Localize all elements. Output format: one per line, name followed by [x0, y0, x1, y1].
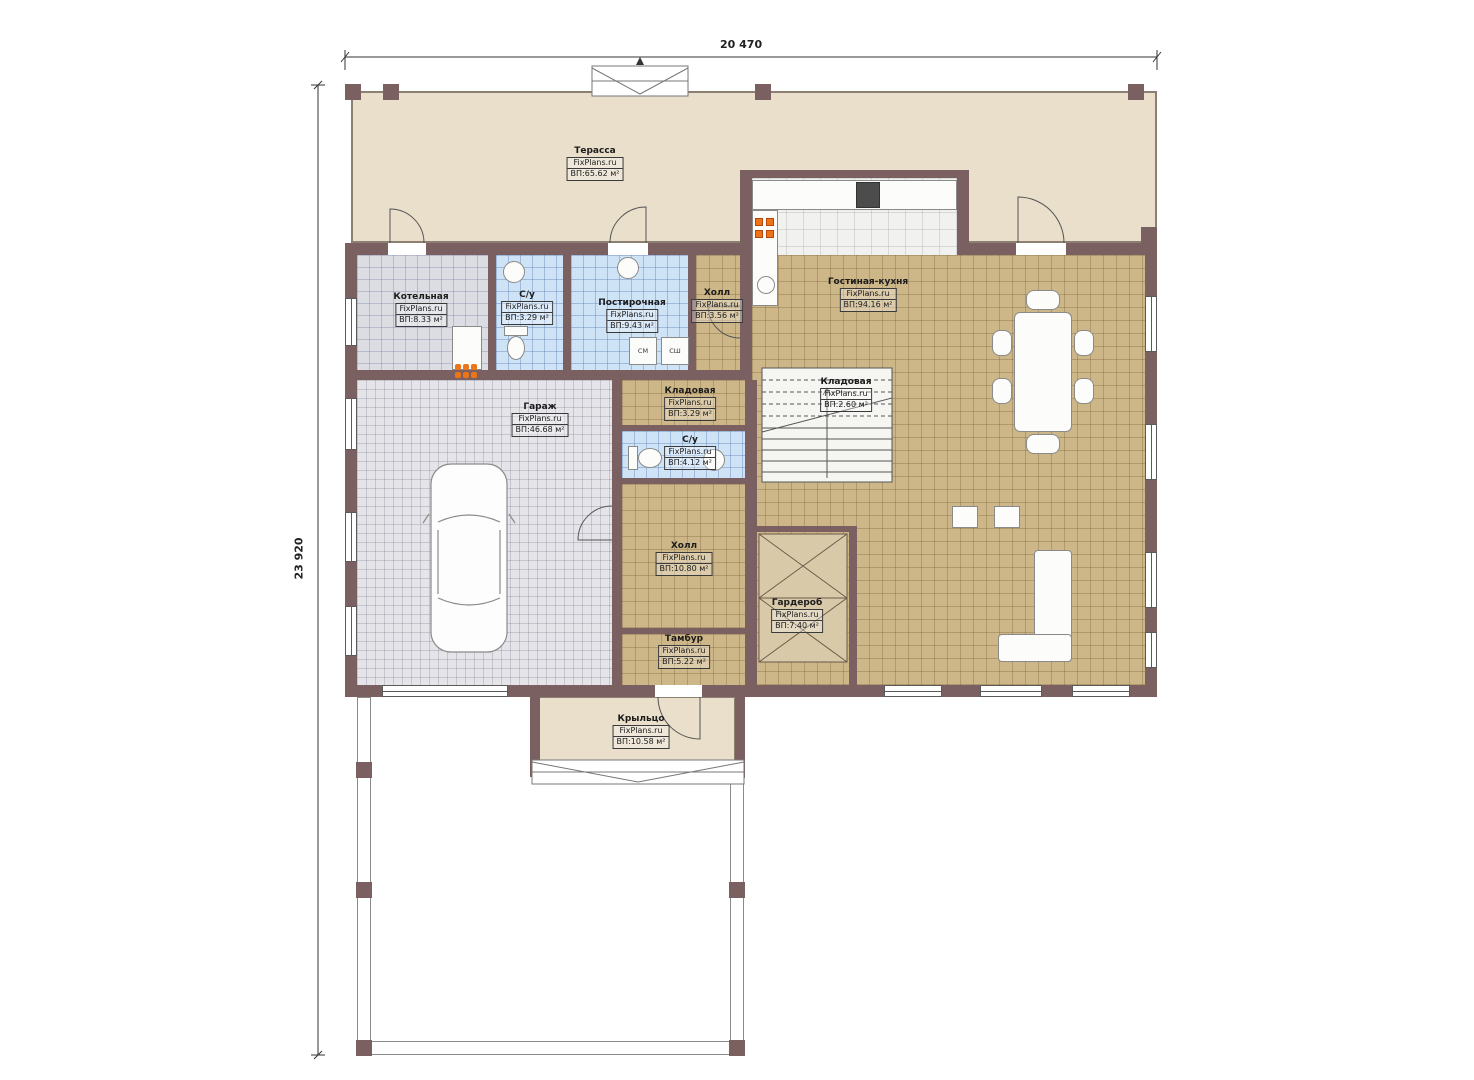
floor-plan: 20 470 23 920: [0, 0, 1474, 1080]
room-watermark: FixPlans.ru: [614, 726, 669, 737]
door-arc-boiler-terrace: [390, 209, 424, 243]
room-label-porch: Крыльцо FixPlans.ruВП:10.58 м²: [613, 714, 670, 749]
room-area: ВП:9.43 м²: [607, 321, 657, 331]
room-label-hall2: Холл FixPlans.ruВП:10.80 м²: [656, 541, 713, 576]
room-area: ВП:65.62 м²: [568, 169, 623, 179]
room-label-living-kitchen: Гостиная-кухня FixPlans.ruВП:94.16 м²: [828, 277, 908, 312]
room-watermark: FixPlans.ru: [607, 310, 657, 321]
room-area: ВП:3.56 м²: [692, 311, 742, 321]
room-label-pantry1: Кладовая FixPlans.ruВП:3.29 м²: [664, 386, 716, 421]
dimension-left-label: 23 920: [293, 537, 306, 579]
door-arc-garage: [578, 506, 612, 540]
room-name: Терасса: [574, 146, 616, 156]
dimension-top-label: 20 470: [720, 38, 762, 51]
car-icon: [423, 464, 515, 652]
canopy-top: [592, 57, 688, 96]
room-area: ВП:3.29 м²: [502, 313, 552, 323]
room-name: Котельная: [393, 292, 448, 302]
room-area: ВП:94.16 м²: [841, 300, 896, 310]
room-label-boiler: Котельная FixPlans.ruВП:8.33 м²: [393, 292, 448, 327]
room-name: Гараж: [523, 402, 556, 412]
room-label-garage: Гараж FixPlans.ruВП:46.68 м²: [512, 402, 569, 437]
room-watermark: FixPlans.ru: [665, 447, 715, 458]
room-area: ВП:10.58 м²: [614, 737, 669, 747]
room-name: Постирочная: [598, 298, 665, 308]
room-area: ВП:5.22 м²: [659, 657, 709, 667]
room-watermark: FixPlans.ru: [841, 289, 896, 300]
room-watermark: FixPlans.ru: [657, 553, 712, 564]
room-name: С/у: [519, 290, 535, 300]
canopy-porch: [532, 760, 744, 784]
room-watermark: FixPlans.ru: [665, 398, 715, 409]
room-area: ВП:8.33 м²: [396, 315, 446, 325]
canopy-arrow: [636, 57, 644, 65]
dimension-left-line: [311, 81, 325, 1059]
room-name: Холл: [671, 541, 697, 551]
room-label-terrace: Терасса FixPlans.ruВП:65.62 м²: [567, 146, 624, 181]
room-name: С/у: [682, 435, 698, 445]
room-area: ВП:3.29 м²: [665, 409, 715, 419]
room-area: ВП:7.40 м²: [772, 621, 822, 631]
room-label-laundry: Постирочная FixPlans.ruВП:9.43 м²: [598, 298, 665, 333]
room-watermark: FixPlans.ru: [659, 646, 709, 657]
room-area: ВП:46.68 м²: [513, 425, 568, 435]
room-watermark: FixPlans.ru: [396, 304, 446, 315]
room-watermark: FixPlans.ru: [568, 158, 623, 169]
room-name: Кладовая: [820, 377, 871, 387]
car-body: [431, 464, 507, 652]
dimension-top-line: [341, 50, 1161, 70]
room-label-pantry2: Кладовая FixPlans.ruВП:2.60 м²: [820, 377, 872, 412]
room-name: Тамбур: [665, 634, 703, 644]
room-label-hall1: Холл FixPlans.ruВП:3.56 м²: [691, 288, 743, 323]
room-watermark: FixPlans.ru: [513, 414, 568, 425]
plan-linework: [0, 0, 1474, 1080]
room-watermark: FixPlans.ru: [772, 610, 822, 621]
room-name: Холл: [704, 288, 730, 298]
room-label-wardrobe: Гардероб FixPlans.ruВП:7.40 м²: [771, 598, 823, 633]
door-arc-laundry-terrace: [610, 207, 646, 243]
room-name: Крыльцо: [617, 714, 664, 724]
room-watermark: FixPlans.ru: [502, 302, 552, 313]
room-watermark: FixPlans.ru: [692, 300, 742, 311]
room-watermark: FixPlans.ru: [821, 389, 871, 400]
room-name: Гостиная-кухня: [828, 277, 908, 287]
room-area: ВП:10.80 м²: [657, 564, 712, 574]
room-label-tambour: Тамбур FixPlans.ruВП:5.22 м²: [658, 634, 710, 669]
door-arc-living-terrace: [1018, 197, 1064, 243]
room-area: ВП:2.60 м²: [821, 400, 871, 410]
room-name: Гардероб: [772, 598, 823, 608]
room-area: ВП:4.12 м²: [665, 458, 715, 468]
room-label-bathroom2: С/у FixPlans.ruВП:4.12 м²: [664, 435, 716, 470]
room-label-bathroom1: С/у FixPlans.ruВП:3.29 м²: [501, 290, 553, 325]
room-name: Кладовая: [664, 386, 715, 396]
